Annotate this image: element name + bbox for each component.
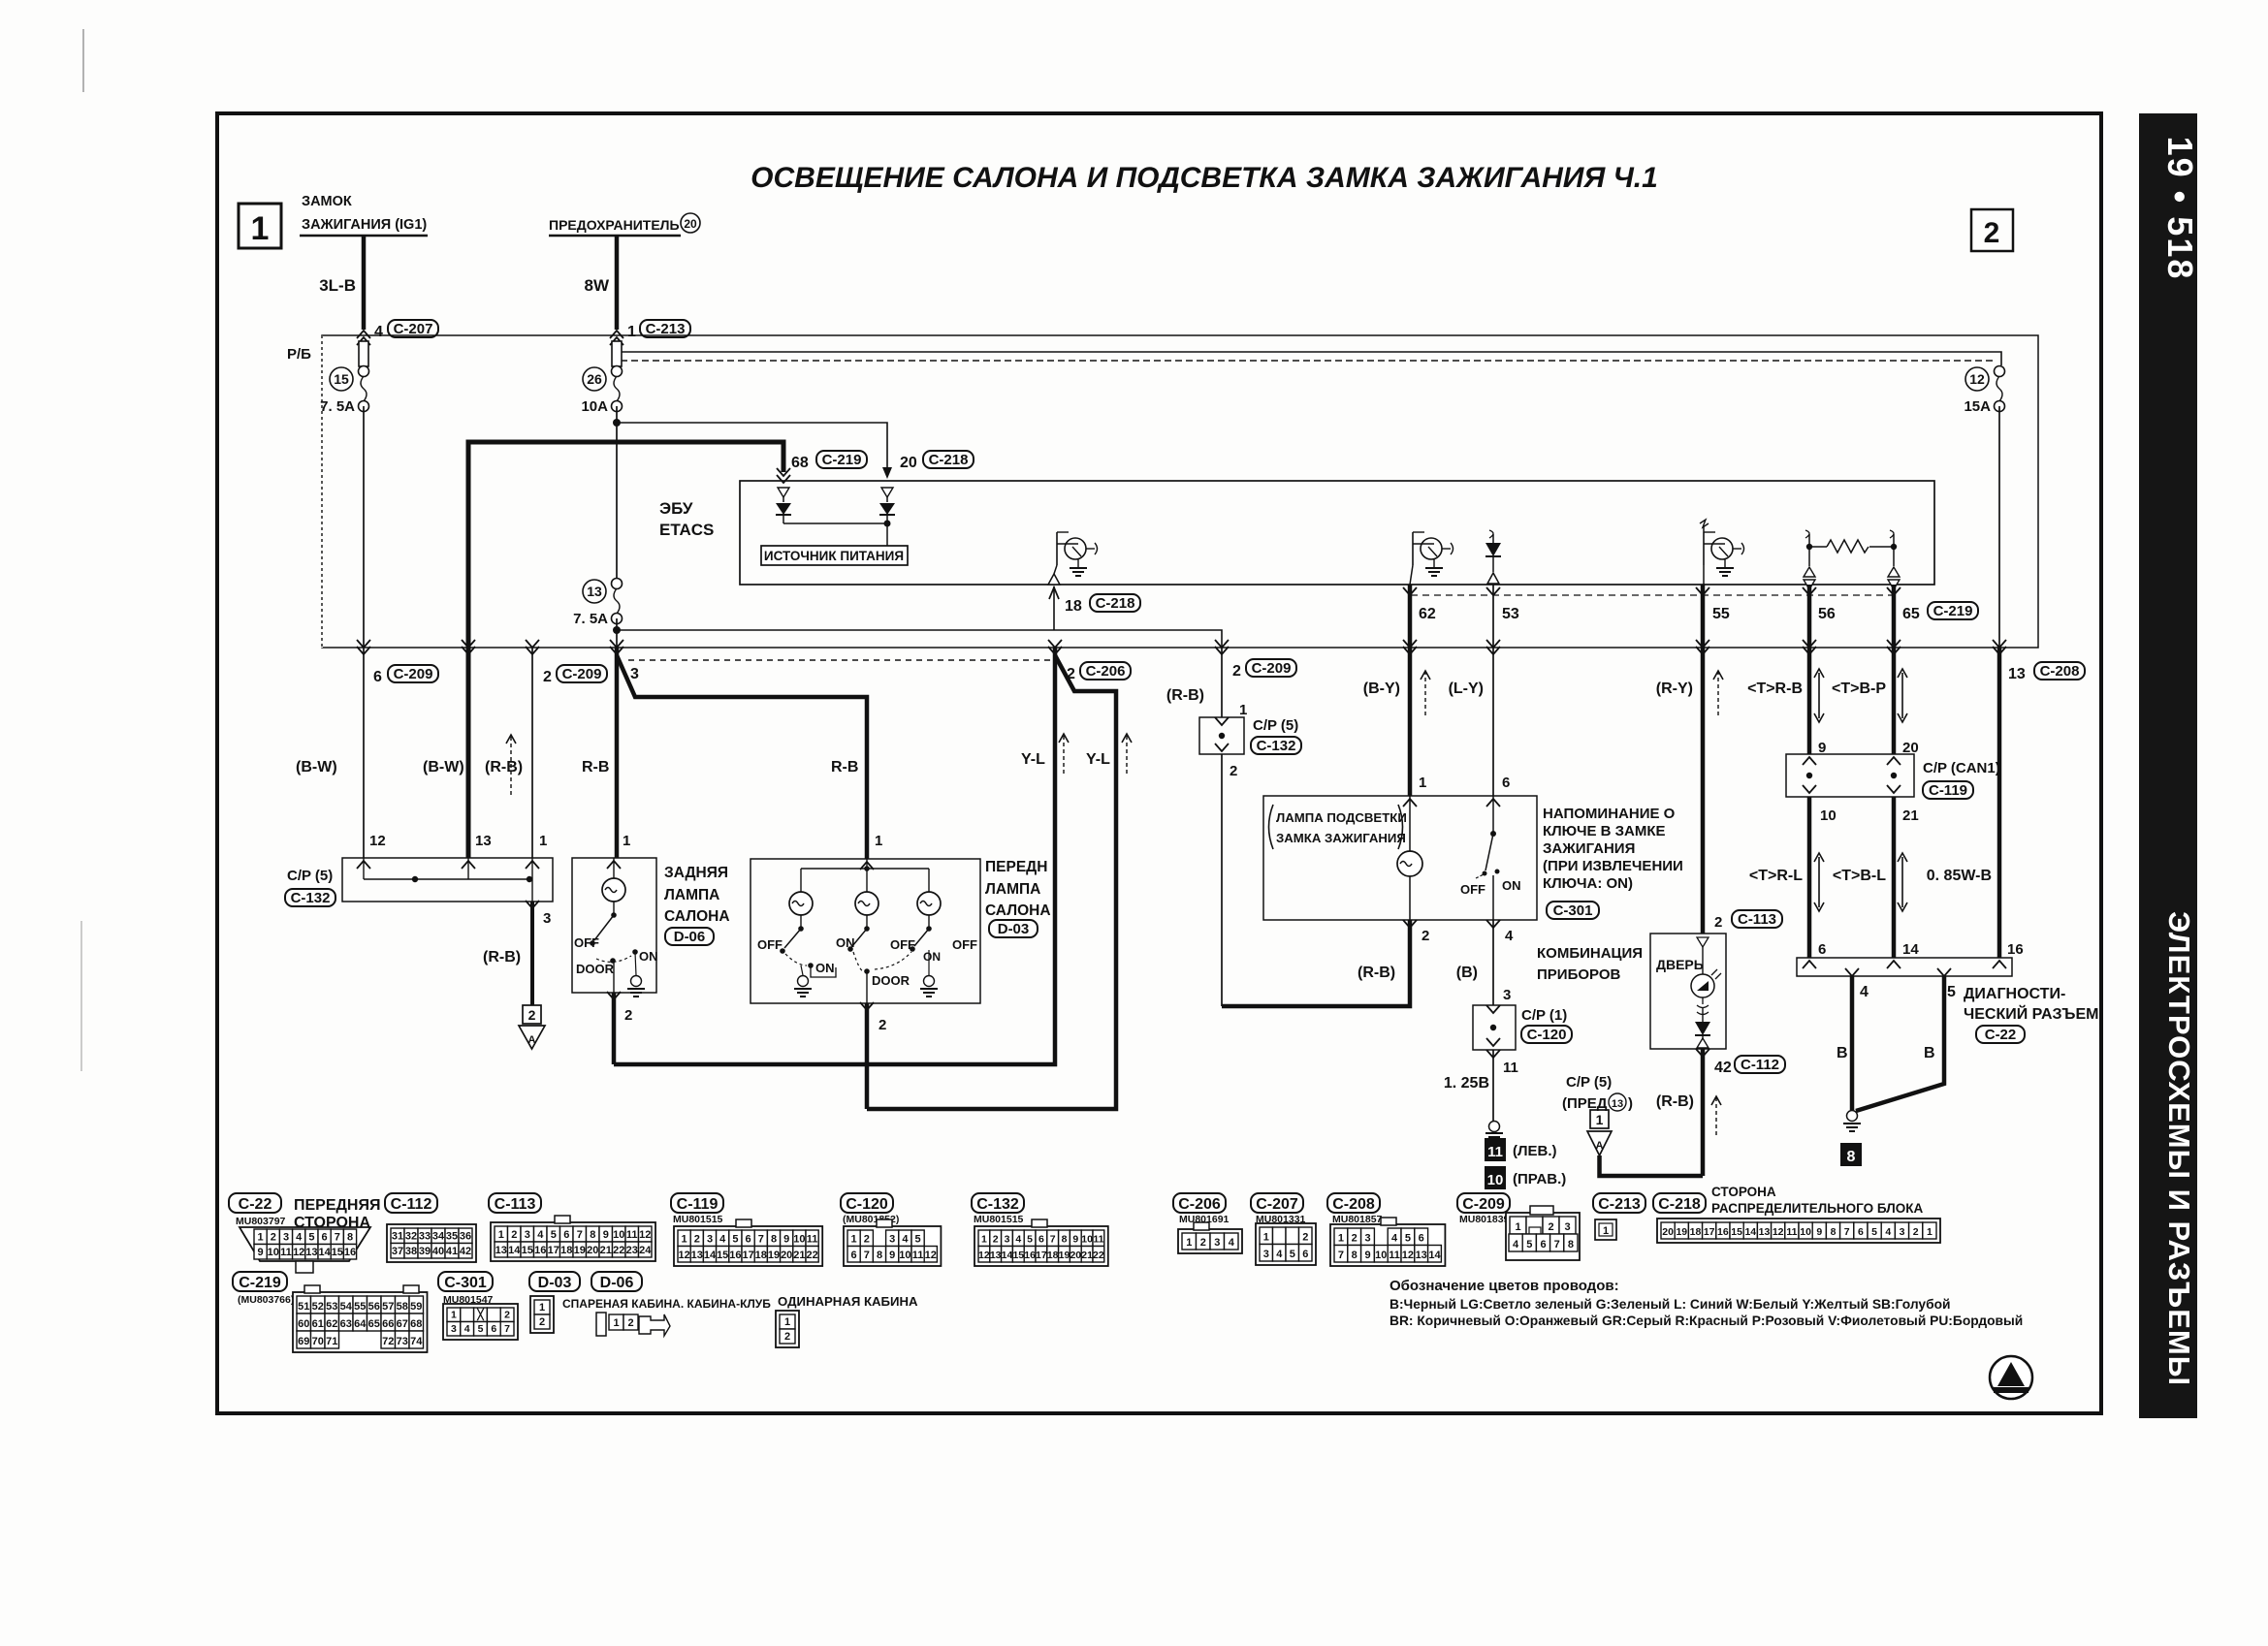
svg-text:ПЕРЕДН: ПЕРЕДН [985, 859, 1047, 875]
svg-text:33: 33 [419, 1231, 431, 1243]
svg-text:OFF: OFF [1460, 882, 1485, 897]
svg-text:КЛЮЧА: ON): КЛЮЧА: ON) [1543, 875, 1633, 892]
svg-text:5: 5 [478, 1323, 484, 1335]
svg-text:4: 4 [537, 1229, 544, 1241]
svg-text:ETACS: ETACS [659, 521, 714, 539]
svg-text:3: 3 [1503, 987, 1511, 1003]
svg-text:62: 62 [326, 1318, 337, 1330]
svg-text:1: 1 [1239, 702, 1247, 718]
svg-text:6: 6 [851, 1250, 857, 1261]
svg-text:15: 15 [1012, 1250, 1024, 1261]
svg-text:17: 17 [1036, 1250, 1047, 1261]
svg-text:R-B: R-B [831, 759, 858, 776]
svg-text:54: 54 [340, 1301, 353, 1313]
svg-text:C-120: C-120 [1527, 1027, 1567, 1043]
svg-text:19: 19 [574, 1245, 586, 1256]
svg-text:5: 5 [1027, 1234, 1033, 1246]
svg-text:1: 1 [981, 1234, 987, 1246]
svg-text:9: 9 [258, 1247, 264, 1258]
svg-text:9: 9 [1816, 1226, 1822, 1238]
svg-text:10A: 10A [581, 398, 608, 415]
svg-text:10: 10 [793, 1234, 805, 1246]
svg-text:OFF: OFF [757, 937, 783, 952]
svg-text:2: 2 [993, 1234, 999, 1246]
svg-text:C-219: C-219 [822, 452, 862, 468]
svg-text:2: 2 [511, 1229, 517, 1241]
svg-text:38: 38 [405, 1246, 417, 1257]
svg-text:10: 10 [1487, 1172, 1504, 1188]
svg-text:OFF: OFF [952, 937, 977, 952]
svg-text:): ) [1628, 1095, 1633, 1112]
svg-text:21: 21 [793, 1250, 805, 1261]
svg-text:16: 16 [1717, 1226, 1729, 1238]
svg-text:11: 11 [807, 1234, 818, 1246]
svg-text:20: 20 [1662, 1226, 1674, 1238]
svg-text:18: 18 [1690, 1226, 1702, 1238]
svg-text:A: A [1596, 1140, 1604, 1152]
svg-text:ДВЕРЬ: ДВЕРЬ [1656, 957, 1704, 972]
svg-text:8: 8 [590, 1229, 595, 1241]
svg-text:62: 62 [1419, 606, 1436, 622]
svg-text:8: 8 [877, 1250, 882, 1261]
svg-text:22: 22 [1093, 1250, 1104, 1261]
svg-text:C-113: C-113 [1738, 911, 1776, 928]
svg-text:4: 4 [1885, 1226, 1891, 1238]
svg-text:6: 6 [1540, 1239, 1546, 1250]
svg-text:1: 1 [613, 1317, 619, 1329]
svg-text:2: 2 [1230, 763, 1237, 779]
svg-text:11: 11 [626, 1229, 638, 1241]
svg-text:4: 4 [1229, 1237, 1235, 1249]
svg-text:8: 8 [771, 1234, 777, 1246]
svg-text:10: 10 [899, 1250, 910, 1261]
svg-text:12: 12 [978, 1250, 990, 1261]
svg-text:71: 71 [326, 1336, 337, 1347]
svg-text:5: 5 [1405, 1233, 1411, 1245]
svg-text:2: 2 [1421, 928, 1429, 944]
svg-text:4: 4 [1513, 1239, 1519, 1250]
svg-text:35: 35 [446, 1231, 458, 1243]
svg-text:ПЕРЕДНЯЯ: ПЕРЕДНЯЯ [294, 1197, 380, 1214]
svg-text:1: 1 [875, 833, 882, 849]
svg-text:7: 7 [335, 1232, 340, 1244]
svg-text:C-213: C-213 [1598, 1196, 1641, 1213]
svg-text:4: 4 [1505, 928, 1514, 944]
svg-text:ЗАЖИГАНИЯ (IG1): ЗАЖИГАНИЯ (IG1) [302, 217, 427, 233]
svg-text:42: 42 [460, 1246, 471, 1257]
svg-text:57: 57 [382, 1301, 394, 1313]
svg-text:BR: Коричневый O:Оранжевый GR:: BR: Коричневый O:Оранжевый GR:Серый R:Кр… [1390, 1314, 2023, 1328]
svg-text:65: 65 [368, 1318, 380, 1330]
svg-text:C-208: C-208 [2040, 663, 2080, 680]
svg-text:5: 5 [1871, 1226, 1877, 1238]
svg-text:C-112: C-112 [1741, 1057, 1779, 1073]
svg-text:C-208: C-208 [1332, 1196, 1375, 1213]
svg-text:16: 16 [2007, 941, 2024, 958]
svg-text:ЭБУ: ЭБУ [659, 499, 693, 518]
svg-text:C-301: C-301 [444, 1275, 487, 1291]
svg-text:5: 5 [1290, 1249, 1295, 1260]
svg-text:MU801839: MU801839 [1459, 1214, 1510, 1225]
svg-text:39: 39 [419, 1246, 431, 1257]
svg-text:MU801515: MU801515 [974, 1214, 1024, 1225]
svg-text:12: 12 [1969, 371, 1985, 387]
svg-text:DOOR: DOOR [576, 962, 615, 976]
svg-text:(B): (B) [1456, 965, 1478, 981]
svg-text:6: 6 [322, 1232, 328, 1244]
svg-text:15A: 15A [1964, 398, 1991, 415]
svg-text:(ЛЕВ.): (ЛЕВ.) [1513, 1143, 1557, 1159]
svg-text:12: 12 [1402, 1250, 1414, 1261]
svg-text:55: 55 [1712, 606, 1730, 622]
svg-text:D-06: D-06 [674, 929, 706, 945]
svg-text:3: 3 [283, 1232, 289, 1244]
svg-text:58: 58 [397, 1301, 408, 1313]
svg-text:41: 41 [446, 1246, 458, 1257]
svg-text:3: 3 [1263, 1249, 1269, 1260]
svg-text:69: 69 [298, 1336, 309, 1347]
svg-text:MU803797: MU803797 [236, 1216, 286, 1227]
svg-text:3: 3 [1005, 1234, 1010, 1246]
svg-text:9: 9 [603, 1229, 609, 1241]
svg-text:<T>B-L: <T>B-L [1833, 868, 1886, 884]
svg-text:18: 18 [1047, 1250, 1059, 1261]
svg-text:14: 14 [704, 1250, 717, 1261]
svg-text:C-132: C-132 [1257, 738, 1296, 754]
svg-text:3: 3 [543, 910, 551, 927]
svg-text:2: 2 [1984, 217, 2000, 249]
svg-text:14: 14 [318, 1247, 331, 1258]
svg-text:2: 2 [1714, 914, 1722, 931]
svg-text:6: 6 [1818, 941, 1826, 958]
svg-text:2: 2 [1200, 1237, 1206, 1249]
svg-text:10: 10 [1375, 1250, 1387, 1261]
svg-text:1. 25B: 1. 25B [1444, 1075, 1489, 1092]
svg-text:9: 9 [783, 1234, 789, 1246]
svg-text:15: 15 [332, 1247, 343, 1258]
svg-text:1: 1 [498, 1229, 504, 1241]
svg-text:1: 1 [1419, 775, 1426, 791]
svg-text:19: 19 [1676, 1226, 1687, 1238]
svg-text:C/P (5): C/P (5) [1566, 1074, 1612, 1091]
svg-text:2: 2 [271, 1232, 276, 1244]
svg-text:2: 2 [1352, 1233, 1358, 1245]
svg-text:5: 5 [1526, 1239, 1532, 1250]
svg-text:24: 24 [639, 1245, 652, 1256]
svg-text:1: 1 [258, 1232, 264, 1244]
svg-text:6: 6 [1038, 1234, 1044, 1246]
svg-text:R-B: R-B [582, 759, 609, 776]
svg-text:2: 2 [543, 669, 552, 685]
svg-text:11: 11 [912, 1250, 924, 1261]
svg-text:ЛАМПА ПОДСВЕТКИ: ЛАМПА ПОДСВЕТКИ [1276, 810, 1407, 825]
svg-text:5: 5 [551, 1229, 557, 1241]
svg-text:2: 2 [624, 1007, 632, 1024]
svg-text:12: 12 [369, 833, 386, 849]
svg-text:6: 6 [1419, 1233, 1424, 1245]
svg-text:0. 85W-B: 0. 85W-B [1927, 868, 1992, 884]
svg-text:ИСТОЧНИК ПИТАНИЯ: ИСТОЧНИК ПИТАНИЯ [764, 549, 904, 563]
svg-text:C-209: C-209 [1252, 660, 1292, 677]
svg-text:70: 70 [312, 1336, 324, 1347]
svg-text:9: 9 [1364, 1250, 1370, 1261]
svg-text:Обозначение цветов проводов:: Обозначение цветов проводов: [1390, 1278, 1619, 1294]
svg-text:13: 13 [2008, 666, 2026, 682]
svg-text:16: 16 [534, 1245, 546, 1256]
svg-text:A: A [528, 1034, 536, 1046]
svg-text:C-22: C-22 [1985, 1027, 2017, 1043]
svg-text:ЧЕСКИЙ РАЗЪЕМ: ЧЕСКИЙ РАЗЪЕМ [1964, 1004, 2098, 1023]
svg-text:2: 2 [539, 1316, 545, 1328]
svg-text:52: 52 [312, 1301, 324, 1313]
svg-text:1: 1 [1596, 1112, 1604, 1127]
svg-text:12: 12 [1773, 1226, 1784, 1238]
svg-text:ON: ON [639, 949, 658, 964]
svg-text:64: 64 [354, 1318, 367, 1330]
svg-text:РАСПРЕДЕЛИТЕЛЬНОГО БЛОКА: РАСПРЕДЕЛИТЕЛЬНОГО БЛОКА [1711, 1201, 1923, 1216]
svg-text:8W: 8W [585, 276, 610, 295]
svg-text:13: 13 [691, 1250, 703, 1261]
svg-text:<T>R-L: <T>R-L [1749, 868, 1803, 884]
svg-text:1: 1 [851, 1234, 857, 1246]
svg-text:10: 10 [1081, 1234, 1093, 1246]
svg-text:(R-B): (R-B) [485, 759, 523, 776]
svg-text:8: 8 [1062, 1234, 1068, 1246]
svg-text:ПРЕДОХРАНИТЕЛЬ: ПРЕДОХРАНИТЕЛЬ [549, 217, 680, 233]
svg-text:C-219: C-219 [239, 1275, 281, 1291]
svg-text:3: 3 [451, 1323, 457, 1335]
svg-text:17: 17 [742, 1250, 753, 1261]
svg-text:B:Черный LG:Светло зеленый G:З: B:Черный LG:Светло зеленый G:Зеленый L: … [1390, 1297, 1951, 1312]
svg-text:Р/Б: Р/Б [287, 346, 311, 363]
svg-text:60: 60 [298, 1318, 309, 1330]
svg-text:4: 4 [464, 1323, 470, 1335]
svg-text:22: 22 [806, 1250, 817, 1261]
svg-text:C/P (1): C/P (1) [1521, 1007, 1567, 1024]
svg-text:11: 11 [1093, 1234, 1103, 1246]
svg-text:Y-L: Y-L [1086, 751, 1110, 768]
svg-text:3: 3 [525, 1229, 530, 1241]
svg-text:C-209: C-209 [394, 666, 433, 682]
svg-text:13: 13 [1612, 1098, 1623, 1110]
svg-text:21: 21 [600, 1245, 612, 1256]
svg-text:2: 2 [1302, 1232, 1308, 1244]
svg-text:22: 22 [613, 1245, 624, 1256]
svg-text:6: 6 [746, 1234, 751, 1246]
svg-text:C-209: C-209 [1462, 1196, 1505, 1213]
svg-text:Y-L: Y-L [1021, 751, 1045, 768]
svg-text:53: 53 [1502, 606, 1519, 622]
svg-text:8: 8 [1847, 1149, 1856, 1165]
svg-text:11: 11 [1786, 1226, 1797, 1238]
svg-text:13: 13 [475, 833, 492, 849]
svg-text:5: 5 [732, 1234, 738, 1246]
svg-text:20: 20 [781, 1250, 792, 1261]
svg-text:3: 3 [707, 1234, 713, 1246]
svg-text:C-209: C-209 [562, 666, 602, 682]
svg-text:3: 3 [1564, 1221, 1570, 1233]
svg-text:14: 14 [508, 1245, 521, 1256]
svg-text:68: 68 [410, 1318, 422, 1330]
svg-text:7: 7 [1844, 1226, 1850, 1238]
svg-text:C/P (5): C/P (5) [287, 868, 333, 884]
svg-text:DOOR: DOOR [872, 973, 910, 988]
svg-text:8: 8 [347, 1232, 353, 1244]
svg-text:18: 18 [1065, 598, 1082, 615]
svg-text:16: 16 [344, 1247, 356, 1258]
svg-text:СТОРОНА: СТОРОНА [1711, 1185, 1776, 1199]
svg-text:10: 10 [1820, 807, 1837, 824]
svg-text:66: 66 [382, 1318, 394, 1330]
svg-text:9: 9 [889, 1250, 895, 1261]
svg-text:13: 13 [1759, 1226, 1771, 1238]
svg-text:3: 3 [630, 666, 639, 682]
svg-text:17: 17 [548, 1245, 559, 1256]
svg-text:37: 37 [392, 1246, 403, 1257]
svg-text:11: 11 [1487, 1144, 1503, 1160]
svg-text:(B-W): (B-W) [423, 759, 464, 776]
svg-text:6: 6 [1858, 1226, 1864, 1238]
svg-text:7: 7 [758, 1234, 764, 1246]
svg-text:14: 14 [1428, 1250, 1441, 1261]
svg-text:ЗАЖИГАНИЯ: ЗАЖИГАНИЯ [1543, 840, 1635, 857]
svg-text:(R-B): (R-B) [1656, 1093, 1694, 1110]
svg-text:2: 2 [1232, 663, 1241, 680]
svg-text:C/P (CAN1): C/P (CAN1) [1923, 760, 2000, 776]
svg-text:9: 9 [1072, 1234, 1078, 1246]
svg-text:(ПРИ ИЗВЛЕЧЕНИИ: (ПРИ ИЗВЛЕЧЕНИИ [1543, 858, 1683, 874]
svg-text:1: 1 [1338, 1233, 1344, 1245]
svg-text:1: 1 [451, 1310, 457, 1321]
svg-text:C-218: C-218 [929, 452, 969, 468]
svg-text:34: 34 [432, 1231, 445, 1243]
svg-text:11: 11 [1503, 1060, 1518, 1076]
svg-text:ON: ON [1502, 878, 1521, 893]
svg-text:(ПРАВ.): (ПРАВ.) [1513, 1171, 1566, 1187]
svg-text:8: 8 [1568, 1239, 1574, 1250]
svg-text:4: 4 [1391, 1233, 1398, 1245]
svg-text:ON: ON [836, 935, 855, 950]
svg-text:36: 36 [460, 1231, 471, 1243]
svg-text:40: 40 [432, 1246, 444, 1257]
svg-text:6: 6 [373, 669, 382, 685]
svg-text:(B-W): (B-W) [296, 759, 337, 776]
svg-text:13: 13 [305, 1247, 317, 1258]
svg-text:13: 13 [1416, 1250, 1427, 1261]
svg-text:18: 18 [755, 1250, 767, 1261]
svg-text:19: 19 [768, 1250, 780, 1261]
svg-text:C-22: C-22 [239, 1196, 272, 1213]
svg-text:2: 2 [1913, 1226, 1919, 1238]
svg-text:42: 42 [1714, 1060, 1732, 1076]
svg-text:32: 32 [405, 1231, 417, 1243]
svg-text:7: 7 [864, 1250, 870, 1261]
svg-text:C-120: C-120 [846, 1196, 888, 1213]
svg-text:4: 4 [719, 1234, 726, 1246]
svg-text:OFF: OFF [574, 935, 599, 950]
svg-text:10: 10 [1800, 1226, 1811, 1238]
svg-text:B: B [1837, 1045, 1848, 1061]
svg-text:1: 1 [623, 833, 630, 849]
svg-text:15: 15 [1731, 1226, 1742, 1238]
svg-text:6: 6 [563, 1229, 569, 1241]
svg-text:1: 1 [1186, 1237, 1192, 1249]
svg-text:ON: ON [923, 950, 941, 964]
svg-text:21: 21 [1081, 1250, 1093, 1261]
svg-text:20: 20 [587, 1245, 598, 1256]
svg-text:C-119: C-119 [1929, 782, 1967, 799]
svg-text:7: 7 [1338, 1250, 1344, 1261]
svg-text:C-132: C-132 [976, 1196, 1019, 1213]
svg-text:12: 12 [639, 1229, 651, 1241]
svg-text:D-06: D-06 [600, 1275, 634, 1291]
svg-text:23: 23 [626, 1245, 638, 1256]
svg-text:16: 16 [729, 1250, 741, 1261]
svg-text:1: 1 [251, 210, 270, 247]
svg-text:20: 20 [684, 217, 697, 231]
svg-text:САЛОНА: САЛОНА [664, 908, 730, 925]
svg-text:13: 13 [495, 1245, 507, 1256]
svg-text:12: 12 [293, 1247, 304, 1258]
svg-text:C-218: C-218 [1658, 1196, 1701, 1213]
svg-text:20: 20 [900, 455, 917, 471]
svg-text:61: 61 [312, 1318, 324, 1330]
svg-text:7: 7 [1554, 1239, 1560, 1250]
svg-text:3: 3 [1214, 1237, 1220, 1249]
svg-text:31: 31 [392, 1231, 403, 1243]
svg-text:6: 6 [1302, 1249, 1308, 1260]
svg-text:3: 3 [1900, 1226, 1905, 1238]
svg-text:5: 5 [1947, 984, 1956, 1000]
svg-text:(L-Y): (L-Y) [1449, 681, 1484, 697]
svg-text:(B-Y): (B-Y) [1363, 681, 1400, 697]
svg-text:ПРИБОРОВ: ПРИБОРОВ [1537, 966, 1620, 983]
svg-text:КЛЮЧЕ В ЗАМКЕ: КЛЮЧЕ В ЗАМКЕ [1543, 823, 1666, 839]
svg-text:ОСВЕЩЕНИЕ САЛОНА И ПОДСВЕТКА З: ОСВЕЩЕНИЕ САЛОНА И ПОДСВЕТКА ЗАМКА ЗАЖИГ… [751, 162, 1658, 194]
svg-text:1: 1 [1515, 1221, 1520, 1233]
svg-text:ЛАМПА: ЛАМПА [664, 887, 719, 903]
svg-text:C-207: C-207 [1256, 1196, 1298, 1213]
svg-text:C-218: C-218 [1096, 595, 1135, 612]
svg-text:16: 16 [1024, 1250, 1036, 1261]
svg-text:2: 2 [528, 1007, 536, 1023]
svg-text:5: 5 [915, 1234, 921, 1246]
svg-text:1: 1 [784, 1316, 790, 1328]
svg-text:MU801515: MU801515 [673, 1214, 723, 1225]
svg-text:1: 1 [1927, 1226, 1933, 1238]
svg-text:2: 2 [627, 1317, 633, 1329]
svg-text:(R-Y): (R-Y) [1656, 681, 1693, 697]
svg-text:1: 1 [682, 1234, 687, 1246]
svg-text:<T>B-P: <T>B-P [1832, 681, 1886, 697]
svg-text:18: 18 [560, 1245, 572, 1256]
svg-text:(R-B): (R-B) [1358, 965, 1395, 981]
svg-text:3: 3 [1364, 1233, 1370, 1245]
svg-text:7: 7 [1050, 1234, 1056, 1246]
svg-text:1: 1 [1603, 1225, 1609, 1237]
svg-text:ДИАГНОСТИ-: ДИАГНОСТИ- [1964, 986, 2065, 1002]
svg-text:56: 56 [368, 1301, 380, 1313]
svg-text:11: 11 [1389, 1250, 1400, 1261]
svg-text:12: 12 [925, 1250, 937, 1261]
svg-text:74: 74 [410, 1336, 423, 1347]
svg-text:11: 11 [280, 1247, 292, 1258]
svg-text:D-03: D-03 [538, 1275, 572, 1291]
svg-text:ОДИНАРНАЯ КАБИНА: ОДИНАРНАЯ КАБИНА [778, 1294, 918, 1309]
svg-text:OFF: OFF [890, 937, 915, 952]
svg-text:2: 2 [694, 1234, 700, 1246]
svg-text:7. 5A: 7. 5A [573, 611, 608, 627]
